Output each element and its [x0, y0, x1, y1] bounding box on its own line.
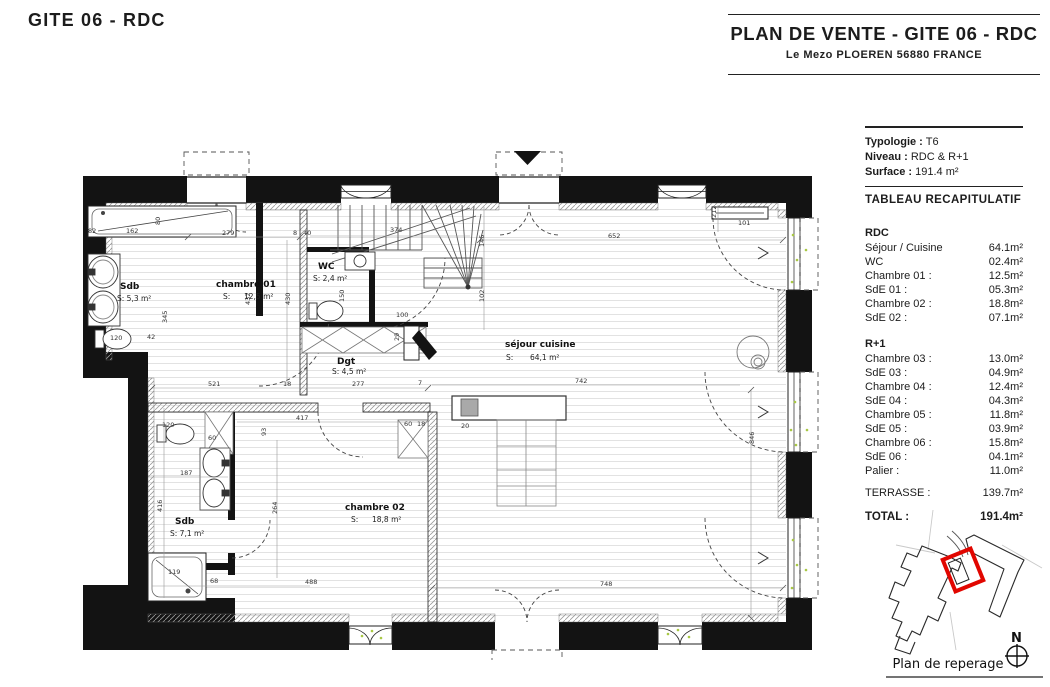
info-panel: Typologie : T6 Niveau : RDC & R+1 Surfac… — [865, 126, 1023, 524]
svg-text:20: 20 — [461, 422, 469, 430]
svg-text:742: 742 — [575, 377, 587, 385]
svg-text:68: 68 — [210, 577, 218, 585]
svg-text:80: 80 — [154, 217, 162, 225]
room-label-ch01: chambre 01 — [216, 280, 276, 290]
svg-text:60: 60 — [208, 434, 216, 442]
typologie-value: T6 — [926, 136, 939, 148]
niveau-value: RDC & R+1 — [911, 151, 969, 163]
svg-text:S:: S: — [223, 292, 230, 301]
info-rule-2 — [865, 186, 1023, 187]
svg-text:120: 120 — [162, 421, 174, 429]
svg-text:42: 42 — [147, 333, 155, 341]
svg-text:748: 748 — [600, 580, 612, 588]
header-title: PLAN DE VENTE - GITE 06 - RDC — [728, 23, 1040, 45]
svg-text:279: 279 — [222, 229, 234, 237]
svg-text:846: 846 — [748, 432, 756, 444]
room-label-sejour: séjour cuisine — [505, 339, 576, 350]
surface-value: 191.4 m² — [915, 166, 958, 178]
svg-text:18: 18 — [417, 420, 425, 428]
table-row: Séjour / Cuisine64.1m² — [865, 241, 1023, 255]
room-label-wc: WC — [318, 262, 335, 272]
svg-text:64,1 m²: 64,1 m² — [530, 353, 559, 362]
table-row: SdE 04 :04.3m² — [865, 394, 1023, 408]
svg-text:187: 187 — [180, 469, 192, 477]
svg-text:264: 264 — [271, 502, 279, 514]
svg-text:417: 417 — [296, 414, 308, 422]
header-subtitle: Le Mezo PLOEREN 56880 FRANCE — [728, 49, 1040, 61]
plan-vente-page: GITE 06 - RDC PLAN DE VENTE - GITE 06 - … — [0, 0, 1050, 687]
svg-text:7: 7 — [418, 379, 422, 387]
svg-text:29: 29 — [393, 333, 401, 341]
table-row: Chambre 02 :18.8m² — [865, 297, 1023, 311]
svg-text:212: 212 — [710, 206, 718, 218]
svg-text:430: 430 — [284, 293, 292, 305]
site-map-roads — [896, 510, 1042, 650]
surface-row: Surface : 191.4 m² — [865, 165, 1023, 180]
header-rule-bottom — [728, 74, 1040, 75]
table-row: Chambre 05 :11.8m² — [865, 408, 1023, 422]
svg-text:150: 150 — [338, 290, 346, 302]
svg-text:S: 5,3 m²: S: 5,3 m² — [117, 294, 151, 303]
site-map: N Plan de reperage — [885, 505, 1045, 685]
svg-text:488: 488 — [305, 578, 317, 586]
room-label-sdb2: Sdb — [175, 517, 195, 527]
entrance-arrow-icon — [514, 151, 541, 165]
table-row: SdE 01 :05.3m² — [865, 283, 1023, 297]
north-label: N — [1011, 631, 1022, 646]
svg-text:S:: S: — [506, 353, 513, 362]
svg-text:145: 145 — [478, 235, 486, 247]
surface-label: Surface : — [865, 166, 912, 178]
svg-text:277: 277 — [352, 380, 364, 388]
terrasse-row: TERRASSE :139.7m² — [865, 486, 1023, 500]
rdc-section-title: RDC — [865, 226, 1023, 240]
bathtub — [88, 206, 236, 237]
niveau-row: Niveau : RDC & R+1 — [865, 150, 1023, 165]
svg-text:40: 40 — [303, 229, 311, 237]
svg-text:119: 119 — [168, 568, 180, 576]
header-rule-top — [728, 14, 1040, 15]
table-row: Chambre 03 :13.0m² — [865, 352, 1023, 366]
table-row: WC02.4m² — [865, 255, 1023, 269]
svg-text:345: 345 — [161, 311, 169, 323]
reperage-label: Plan de reperage — [892, 657, 1003, 672]
table-row: Chambre 06 :15.8m² — [865, 436, 1023, 450]
svg-text:521: 521 — [208, 380, 220, 388]
svg-text:374: 374 — [390, 226, 402, 234]
svg-text:416: 416 — [156, 500, 164, 512]
svg-text:101: 101 — [738, 219, 750, 227]
table-row: Palier :11.0m² — [865, 464, 1023, 478]
svg-text:82: 82 — [88, 227, 96, 235]
svg-text:100: 100 — [396, 311, 408, 319]
r1-section-title: R+1 — [865, 337, 1023, 351]
table-row: SdE 02 :07.1m² — [865, 311, 1023, 325]
niveau-label: Niveau : — [865, 151, 908, 163]
floor-plan: 82 162 80 279 8 40 374 652 101 212 145 1… — [75, 140, 820, 660]
svg-text:652: 652 — [608, 232, 620, 240]
svg-text:18,8 m²: 18,8 m² — [372, 515, 401, 524]
shower — [148, 553, 206, 601]
page-title: GITE 06 - RDC — [28, 10, 166, 31]
table-row: SdE 06 :04.1m² — [865, 450, 1023, 464]
svg-text:93: 93 — [260, 428, 268, 436]
table-row: SdE 03 :04.9m² — [865, 366, 1023, 380]
svg-text:S: 4,5 m²: S: 4,5 m² — [332, 367, 366, 376]
table-row: SdE 05 :03.9m² — [865, 422, 1023, 436]
svg-text:102: 102 — [478, 290, 486, 302]
table-row: Chambre 04 :12.4m² — [865, 380, 1023, 394]
table-title: TABLEAU RECAPITULATIF — [865, 194, 1023, 206]
typologie-row: Typologie : T6 — [865, 135, 1023, 150]
svg-text:12,5 m²: 12,5 m² — [244, 292, 273, 301]
svg-text:162: 162 — [126, 227, 138, 235]
svg-text:18: 18 — [283, 380, 291, 388]
table-row: Chambre 01 :12.5m² — [865, 269, 1023, 283]
info-rule — [865, 126, 1023, 128]
compass-icon — [1005, 644, 1029, 668]
room-label-dgt: Dgt — [337, 357, 356, 367]
svg-text:S: 7,1 m²: S: 7,1 m² — [170, 529, 204, 538]
room-label-ch02: chambre 02 — [345, 503, 405, 513]
svg-text:S:: S: — [351, 515, 358, 524]
svg-text:S: 2,4 m²: S: 2,4 m² — [313, 274, 347, 283]
svg-text:60: 60 — [404, 420, 412, 428]
kitchen-counter — [452, 396, 566, 420]
room-label-sdb1: Sdb — [120, 282, 140, 292]
double-sink — [88, 254, 120, 326]
typologie-label: Typologie : — [865, 136, 923, 148]
svg-text:8: 8 — [293, 229, 297, 237]
svg-text:120: 120 — [110, 334, 122, 342]
